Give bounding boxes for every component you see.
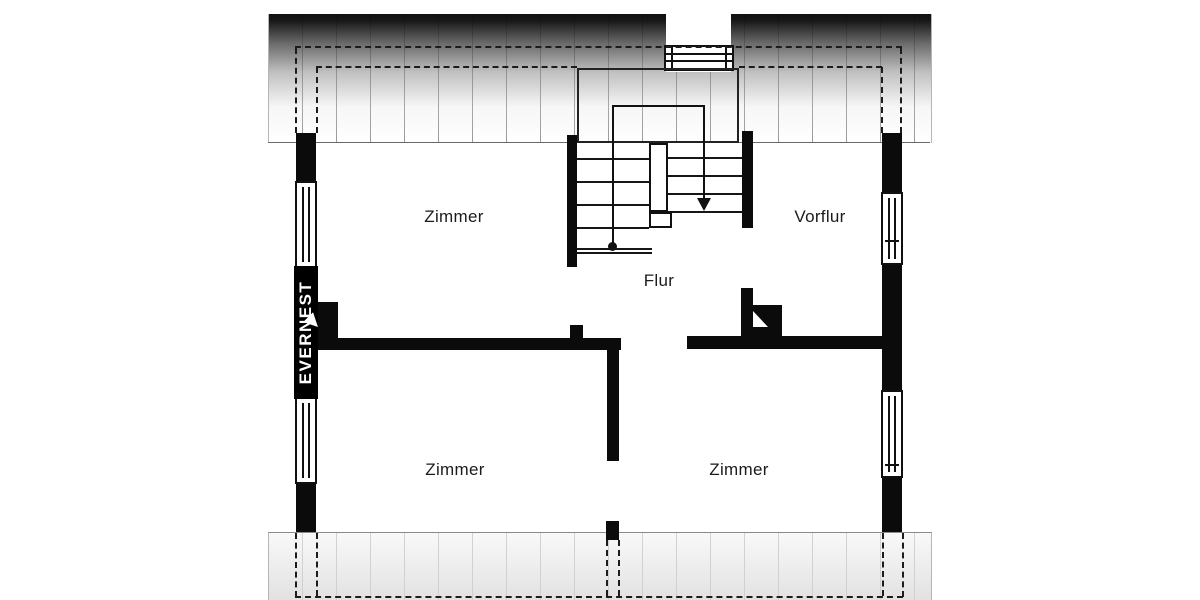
stair-divider-step [649,212,672,228]
roof-hatch-bottom [268,532,932,600]
room-label-flur: Flur [599,271,719,291]
wall-left-top [296,133,316,181]
floor-plan: Zimmer Vorflur Flur Zimmer Zimmer EVERNE… [0,0,1200,600]
wall-horizontal-left [316,338,621,350]
dashed-line [295,596,903,598]
wall-stub-bottom [606,521,619,540]
dashed-line [902,533,904,597]
dashed-line [316,533,318,596]
dashed-line [881,67,883,133]
stair-wall-left [567,135,577,267]
window-right-upper [881,192,903,265]
watermark-text: EVERNEST [294,266,318,399]
walking-line [612,105,614,247]
room-label-zimmer-bottom-left: Zimmer [395,460,515,480]
stair-direction-arrow-icon [697,198,711,211]
window-right-lower [881,390,903,478]
window-left-lower [295,397,317,484]
dashed-line [295,533,297,597]
room-label-vorflur: Vorflur [760,207,880,227]
stair-step [668,211,742,213]
window-left-upper [295,181,317,268]
dashed-line [295,46,902,48]
stair-edge [577,252,652,254]
room-label-zimmer-bottom-right: Zimmer [679,460,799,480]
dashed-line [739,66,882,68]
dashed-line [900,48,902,133]
walking-line-start-dot [608,242,617,251]
dashed-line [882,533,884,596]
wall-horizontal-right [687,336,893,349]
stair-wall-right [742,131,753,228]
dashed-line [606,540,608,596]
walking-line [612,105,705,107]
walking-line [703,105,705,200]
wall-vertical-center [607,342,619,461]
dashed-line [316,66,577,68]
stair-step [668,157,742,159]
wall-right-bottom [882,478,902,532]
wall-right-middle [882,265,902,390]
dashed-line [295,48,297,133]
stair-step [668,175,742,177]
door-jamb [570,325,583,338]
dashed-line [316,67,318,133]
stair-step [668,193,742,195]
room-label-zimmer-top-left: Zimmer [394,207,514,227]
stair-divider [649,143,668,212]
wall-left-bottom [296,484,316,532]
wall-right-top [882,133,902,192]
dashed-line [618,540,620,596]
